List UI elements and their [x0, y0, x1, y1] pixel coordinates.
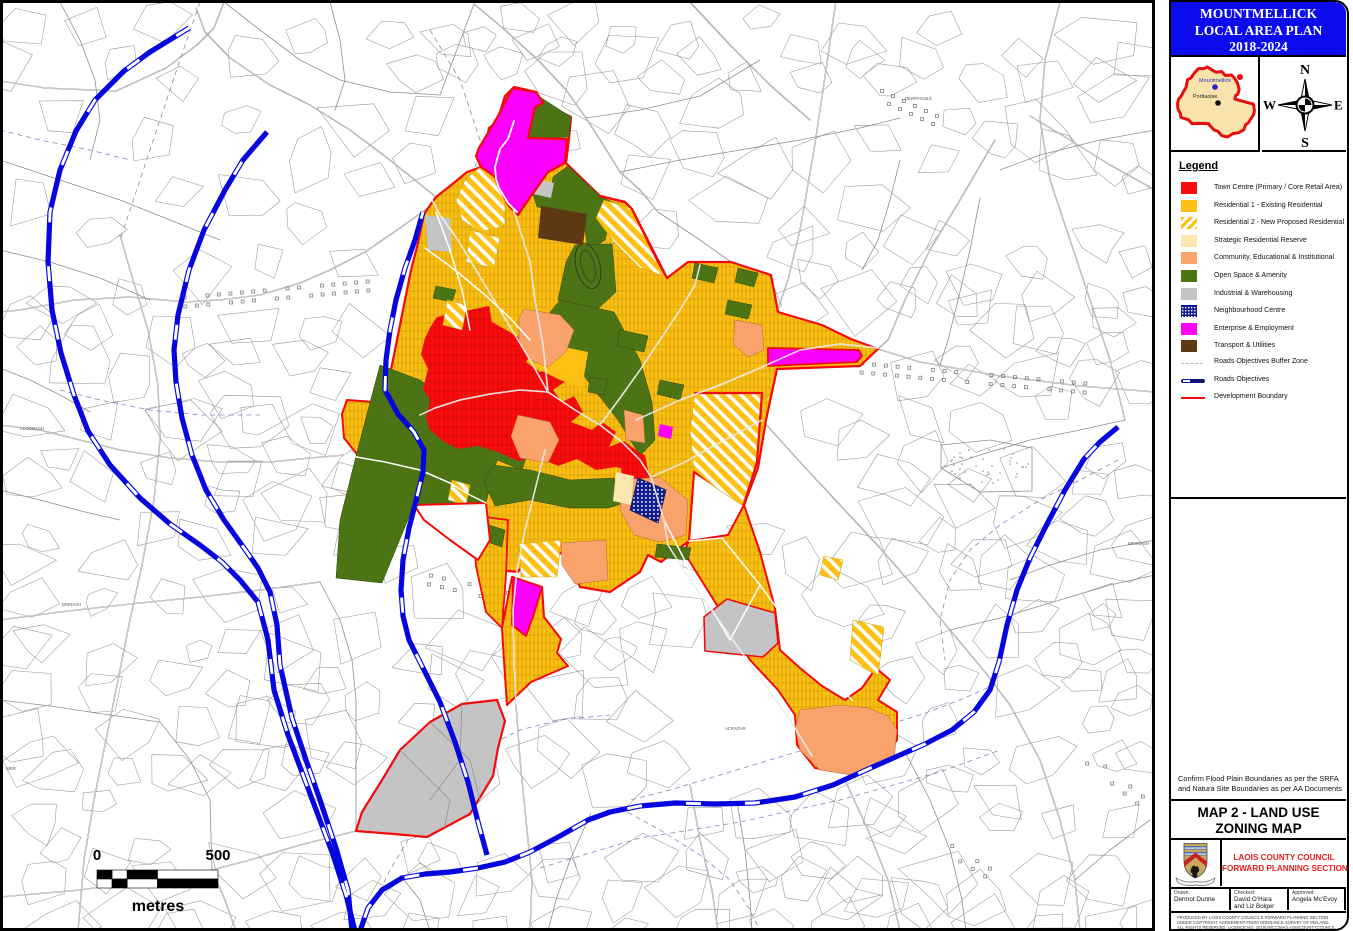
svg-text:N: N	[1300, 63, 1310, 78]
svg-text:ACRAGAR: ACRAGAR	[725, 726, 746, 731]
svg-text:500: 500	[205, 847, 230, 864]
svg-text:WER: WER	[6, 766, 16, 771]
svg-text:0: 0	[93, 847, 101, 864]
svg-text:E: E	[1334, 98, 1343, 113]
svg-text:metres: metres	[132, 898, 185, 915]
svg-text:CLOONAGH: CLOONAGH	[20, 426, 44, 431]
svg-text:S: S	[1301, 136, 1309, 150]
svg-text:DERRYGUILE: DERRYGUILE	[905, 96, 932, 101]
svg-text:BRONAGH: BRONAGH	[1128, 541, 1149, 546]
svg-text:Portlaoise: Portlaoise	[1193, 94, 1217, 100]
svg-text:DRINAGH: DRINAGH	[62, 602, 81, 607]
svg-text:Mountmellick: Mountmellick	[1199, 78, 1231, 84]
svg-text:W: W	[1263, 98, 1276, 113]
